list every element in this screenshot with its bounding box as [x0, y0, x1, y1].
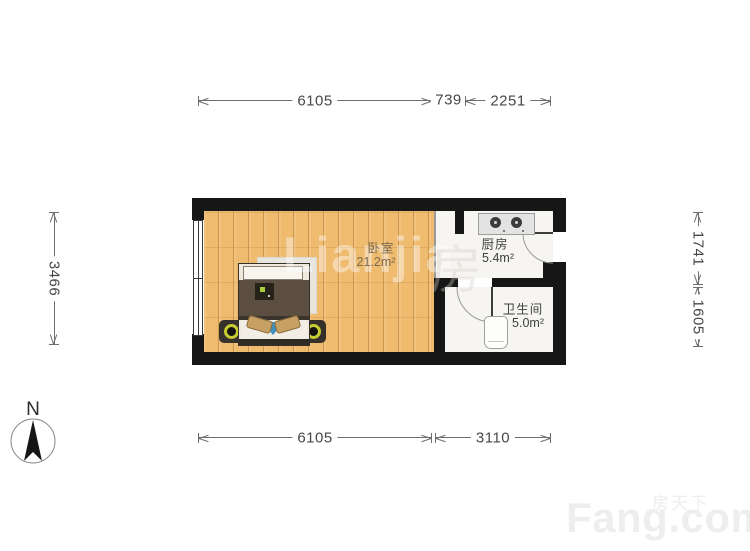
stove-icon	[478, 213, 535, 235]
entry-door-arc	[523, 233, 553, 263]
lamp-icon	[224, 324, 239, 339]
bedroom-area: 21.2m²	[357, 255, 396, 269]
stove-knob-icon	[522, 230, 524, 232]
floorplan-page: 6105 739 2251 6105 3110 3466	[0, 0, 750, 551]
door-swings	[0, 0, 750, 551]
toilet-icon	[484, 316, 508, 349]
bed-bench	[243, 266, 303, 280]
bed-accent-panel	[255, 283, 274, 300]
bed-duvet	[239, 280, 309, 316]
compass-north-label: N	[26, 399, 40, 420]
accent-dot-icon	[268, 295, 270, 297]
site-watermark-en: Fang.com	[566, 494, 750, 542]
north-arrow-icon	[24, 420, 42, 461]
burner-icon	[490, 217, 501, 228]
burner-icon	[511, 217, 522, 228]
kitchen-label: 厨房	[481, 234, 508, 253]
bathroom-label: 卫生间	[503, 299, 544, 318]
compass: N	[2, 393, 68, 469]
kitchen-area: 5.4m²	[482, 251, 514, 265]
bathroom-area: 5.0m²	[512, 316, 544, 330]
bedroom-label: 卧室	[367, 238, 394, 257]
bed-footboard	[239, 339, 309, 345]
bed	[238, 263, 310, 346]
stove-knob-icon	[503, 230, 505, 232]
accent-dot-icon	[260, 287, 265, 292]
